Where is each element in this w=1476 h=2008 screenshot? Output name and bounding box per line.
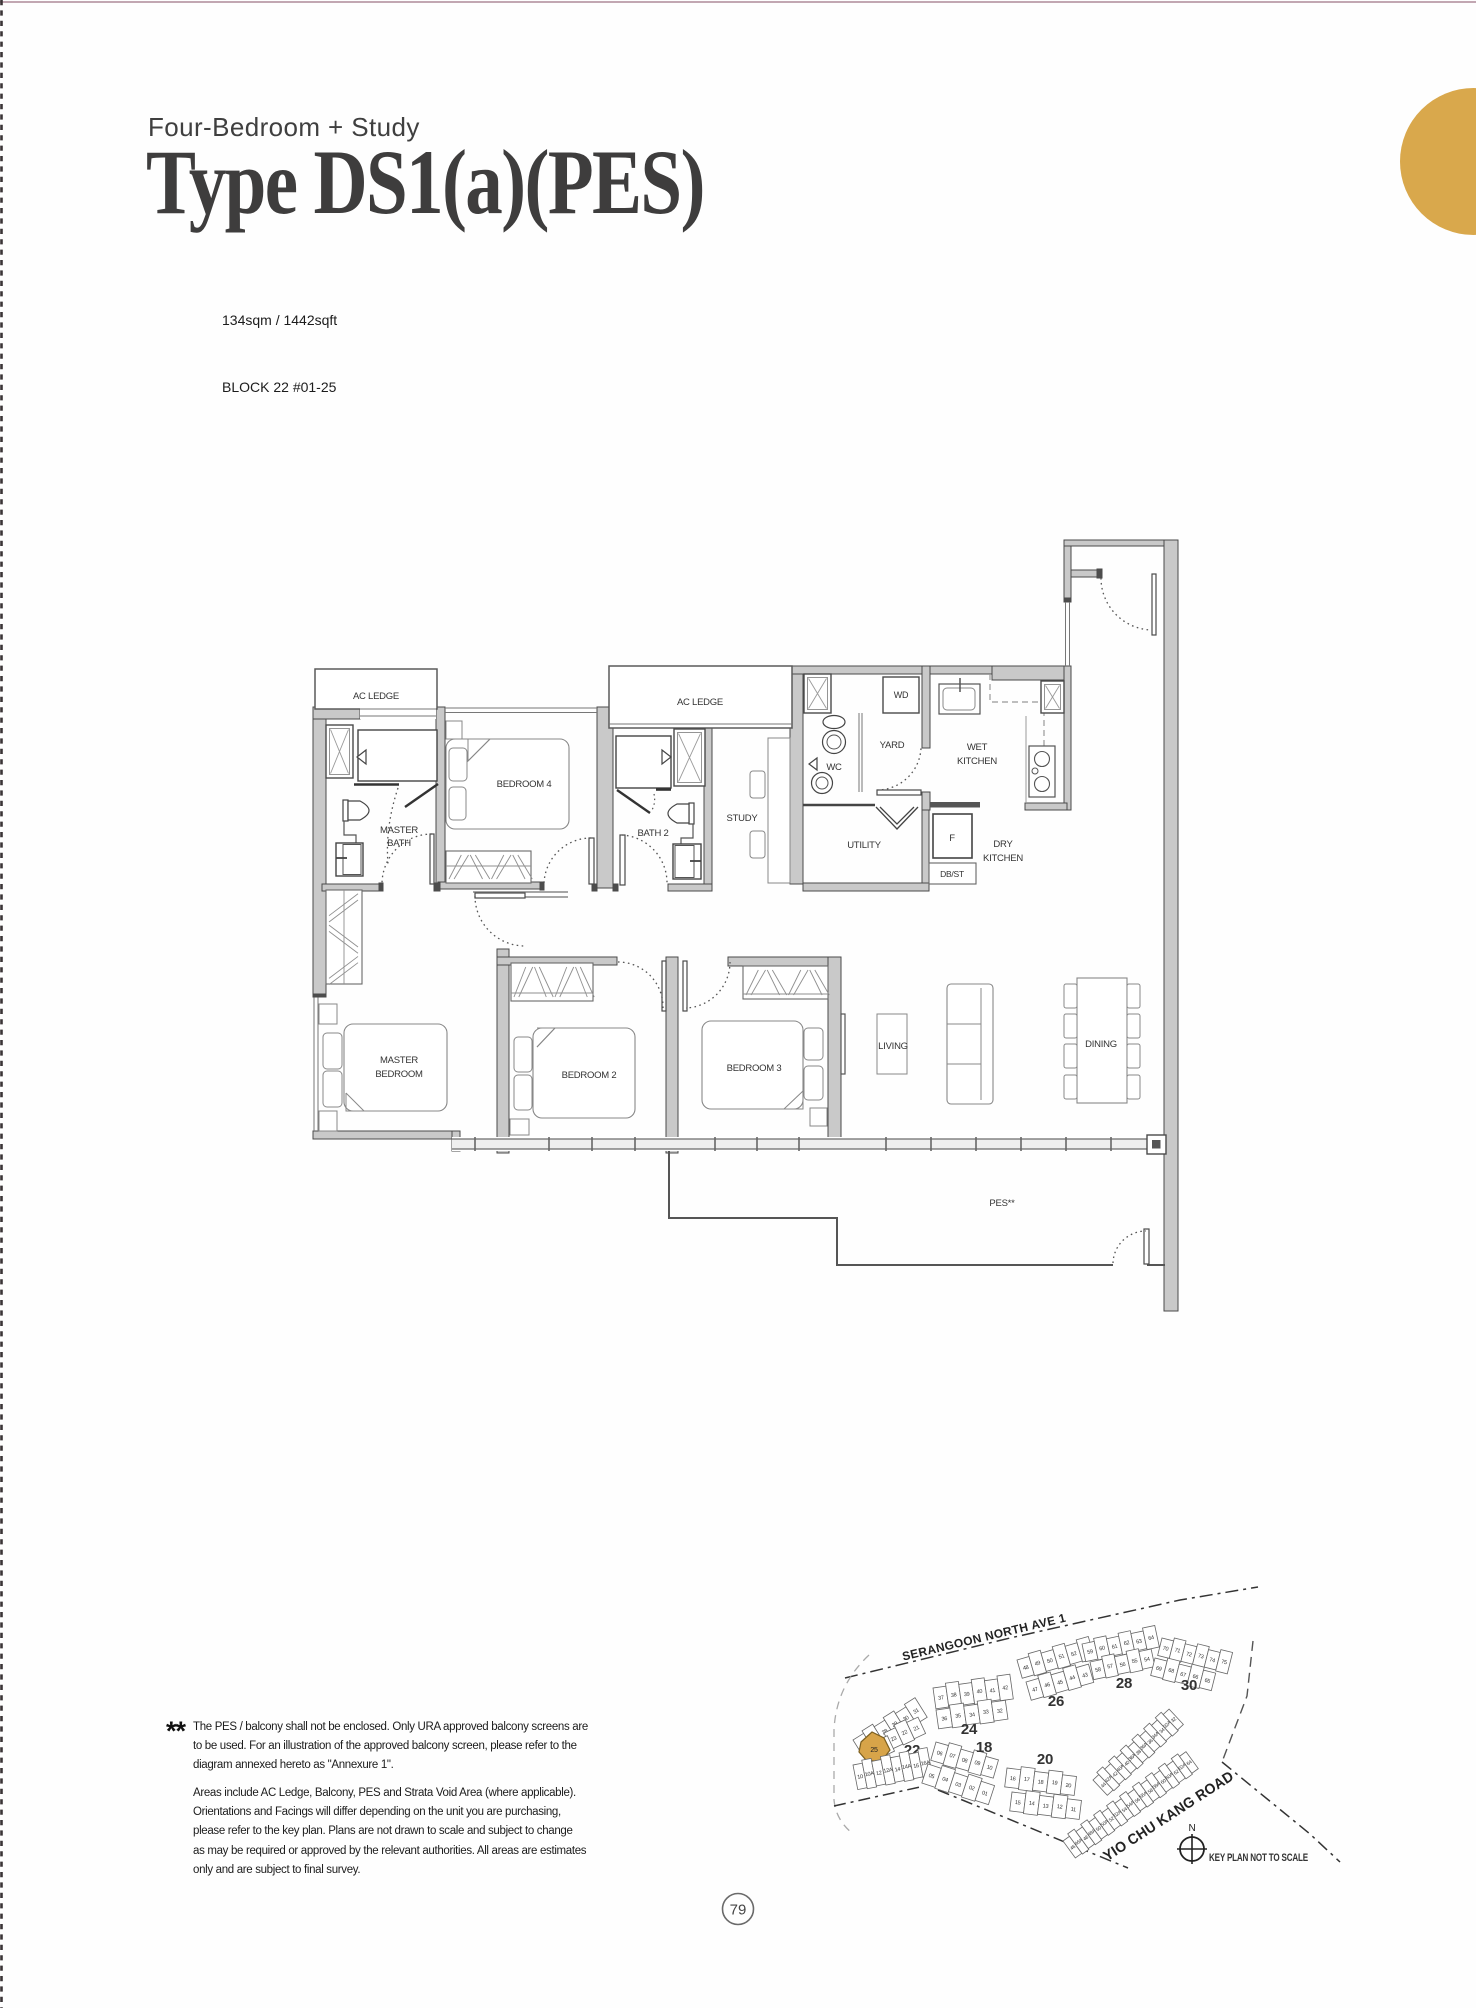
svg-text:MASTER: MASTER [380,825,418,836]
svg-text:20: 20 [1065,1783,1071,1790]
svg-text:79: 79 [730,1902,747,1919]
svg-text:28: 28 [1116,1675,1132,1692]
svg-text:BEDROOM: BEDROOM [375,1069,423,1080]
svg-text:KEY PLAN NOT TO SCALE: KEY PLAN NOT TO SCALE [1209,1852,1308,1864]
svg-text:17: 17 [1024,1777,1030,1784]
svg-text:12: 12 [1056,1804,1062,1811]
svg-text:19: 19 [1051,1780,1057,1787]
svg-text:33: 33 [983,1709,990,1716]
svg-text:25: 25 [870,1747,878,1754]
svg-text:38: 38 [951,1692,958,1699]
svg-text:11: 11 [1070,1807,1076,1814]
svg-text:BEDROOM 4: BEDROOM 4 [497,779,552,790]
svg-text:35: 35 [955,1713,962,1720]
svg-text:BATH 2: BATH 2 [637,828,668,839]
svg-text:MASTER: MASTER [380,1055,418,1066]
svg-text:41: 41 [989,1688,996,1695]
svg-text:AC LEDGE: AC LEDGE [677,697,723,708]
svg-text:18: 18 [976,1739,992,1756]
svg-text:16: 16 [1010,1776,1016,1783]
svg-text:26: 26 [1048,1693,1064,1710]
svg-text:15: 15 [1015,1800,1021,1807]
svg-text:14: 14 [1029,1801,1035,1808]
svg-text:DB/ST: DB/ST [940,869,964,879]
svg-text:36: 36 [941,1716,948,1723]
svg-text:BEDROOM 3: BEDROOM 3 [727,1063,782,1074]
svg-text:WET: WET [967,742,988,753]
svg-text:39: 39 [964,1691,971,1698]
svg-text:F: F [949,833,955,844]
svg-text:34: 34 [969,1712,976,1719]
svg-text:YARD: YARD [880,740,905,751]
svg-text:LIVING: LIVING [878,1041,908,1052]
svg-text:32: 32 [997,1708,1004,1715]
svg-text:40: 40 [976,1689,983,1696]
svg-text:KITCHEN: KITCHEN [957,756,997,767]
svg-text:30: 30 [1181,1677,1197,1694]
svg-text:AC LEDGE: AC LEDGE [353,691,399,702]
svg-text:24: 24 [961,1721,978,1738]
svg-text:DRY: DRY [993,839,1013,850]
svg-text:WC: WC [826,762,842,773]
svg-text:WD: WD [894,690,909,700]
svg-text:KITCHEN: KITCHEN [983,853,1023,864]
svg-text:BEDROOM 2: BEDROOM 2 [562,1070,617,1081]
svg-text:18: 18 [1037,1779,1043,1786]
svg-text:DINING: DINING [1085,1039,1117,1050]
svg-text:PES**: PES** [989,1198,1015,1209]
svg-text:N: N [1189,1823,1196,1834]
svg-text:20: 20 [1037,1751,1053,1768]
svg-text:UTILITY: UTILITY [847,840,882,851]
svg-text:13: 13 [1042,1803,1048,1810]
svg-text:STUDY: STUDY [727,813,759,824]
svg-text:42: 42 [1002,1685,1009,1692]
svg-text:37: 37 [938,1695,945,1702]
